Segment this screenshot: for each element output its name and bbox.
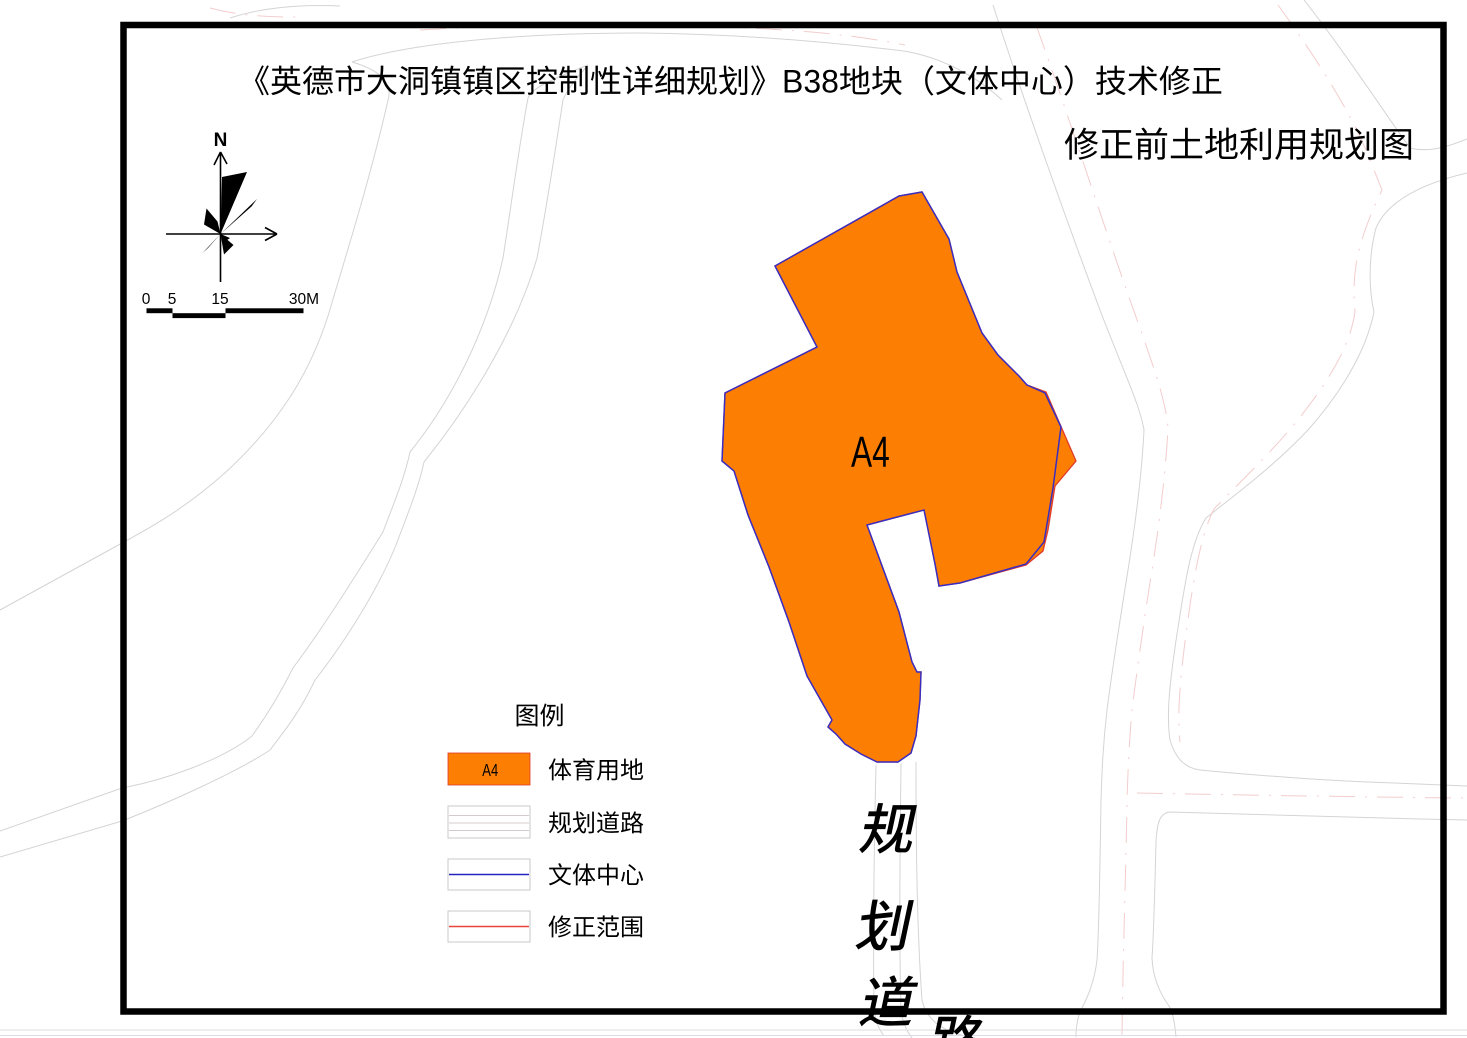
svg-text:N: N (214, 130, 228, 151)
svg-text:A4: A4 (482, 761, 498, 781)
svg-text:5: 5 (168, 291, 177, 308)
svg-text:15: 15 (211, 291, 228, 308)
svg-text:B38: B38 (782, 64, 839, 100)
svg-text:A4: A4 (851, 428, 890, 477)
svg-text:30M: 30M (289, 291, 319, 308)
svg-text:0: 0 (142, 291, 151, 308)
